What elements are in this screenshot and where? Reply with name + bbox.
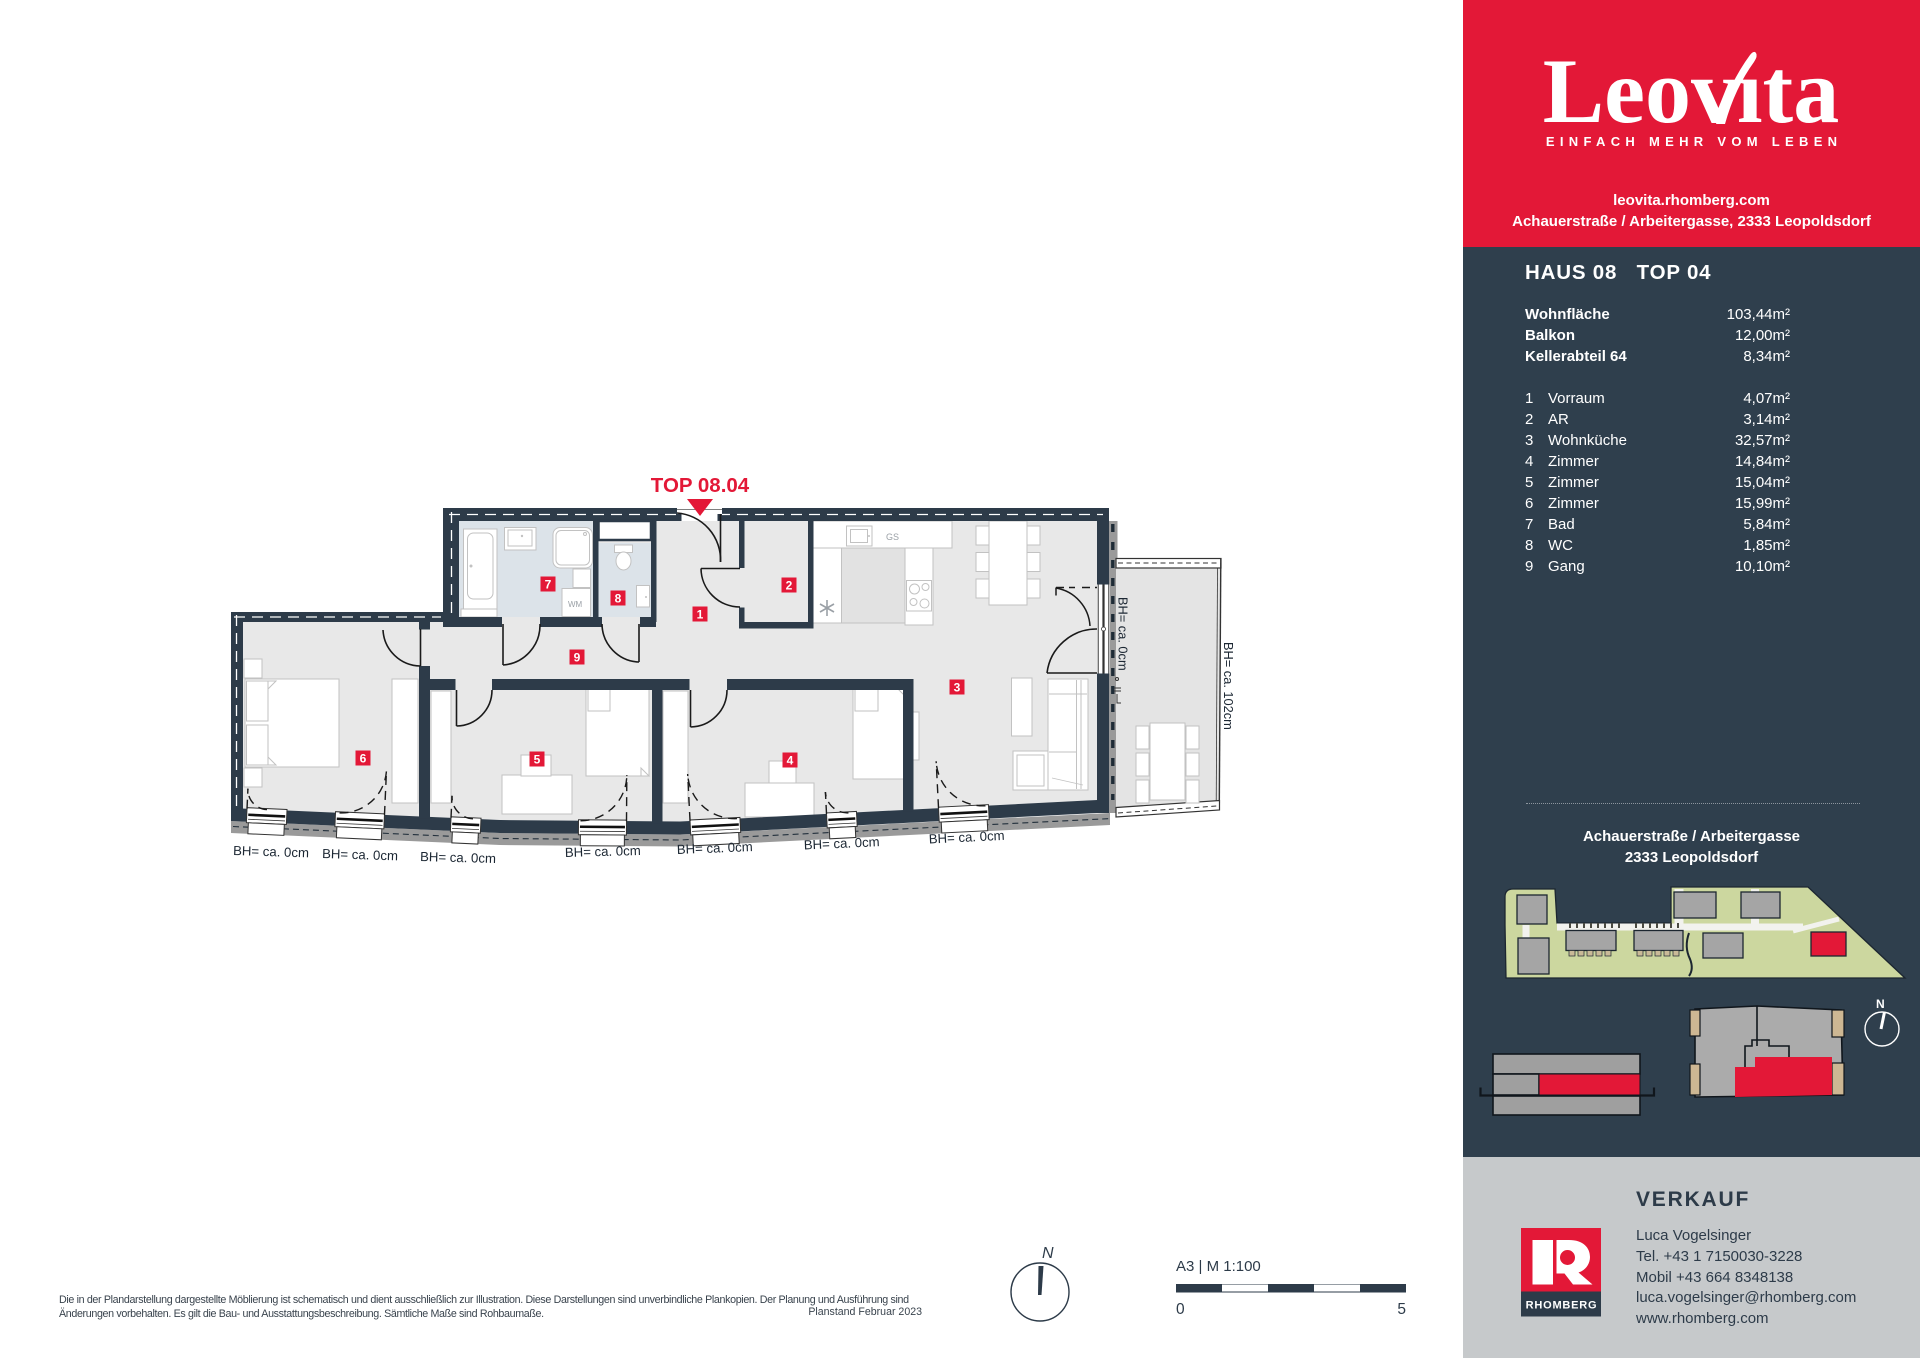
svg-text:BH= ca. 0cm: BH= ca. 0cm bbox=[565, 843, 641, 860]
svg-text:6: 6 bbox=[360, 751, 367, 765]
svg-text:BH= ca. 0cm: BH= ca. 0cm bbox=[420, 849, 496, 866]
svg-text:BH= ca. 0cm: BH= ca. 0cm bbox=[803, 834, 879, 852]
svg-text:RHOMBERG: RHOMBERG bbox=[1526, 1300, 1598, 1312]
svg-text:BH= ca. 0cm: BH= ca. 0cm bbox=[233, 843, 309, 860]
svg-text:BH= ca. 0cm: BH= ca. 0cm bbox=[677, 839, 753, 857]
svg-text:N: N bbox=[1042, 1245, 1054, 1262]
svg-text:GS: GS bbox=[886, 532, 899, 542]
svg-text:BH= ca. 0cm: BH= ca. 0cm bbox=[322, 846, 398, 863]
svg-text:3: 3 bbox=[954, 680, 961, 694]
svg-text:WM: WM bbox=[568, 600, 583, 609]
svg-text:2: 2 bbox=[786, 578, 793, 592]
svg-text:1: 1 bbox=[697, 607, 704, 621]
svg-text:TOP 08.04: TOP 08.04 bbox=[651, 474, 750, 497]
svg-text:Leovıta: Leovıta bbox=[1543, 40, 1839, 134]
svg-text:7: 7 bbox=[545, 577, 552, 591]
svg-text:N: N bbox=[1876, 997, 1885, 1011]
svg-text:BH= ca. 0cm: BH= ca. 0cm bbox=[928, 828, 1005, 847]
svg-text:5: 5 bbox=[534, 752, 541, 766]
svg-text:BH= ca. 0cm: BH= ca. 0cm bbox=[1116, 597, 1131, 671]
svg-text:4: 4 bbox=[787, 753, 794, 767]
svg-text:8: 8 bbox=[615, 591, 622, 605]
svg-text:9: 9 bbox=[574, 650, 581, 664]
svg-text:BH= ca. 102cm: BH= ca. 102cm bbox=[1221, 642, 1236, 730]
